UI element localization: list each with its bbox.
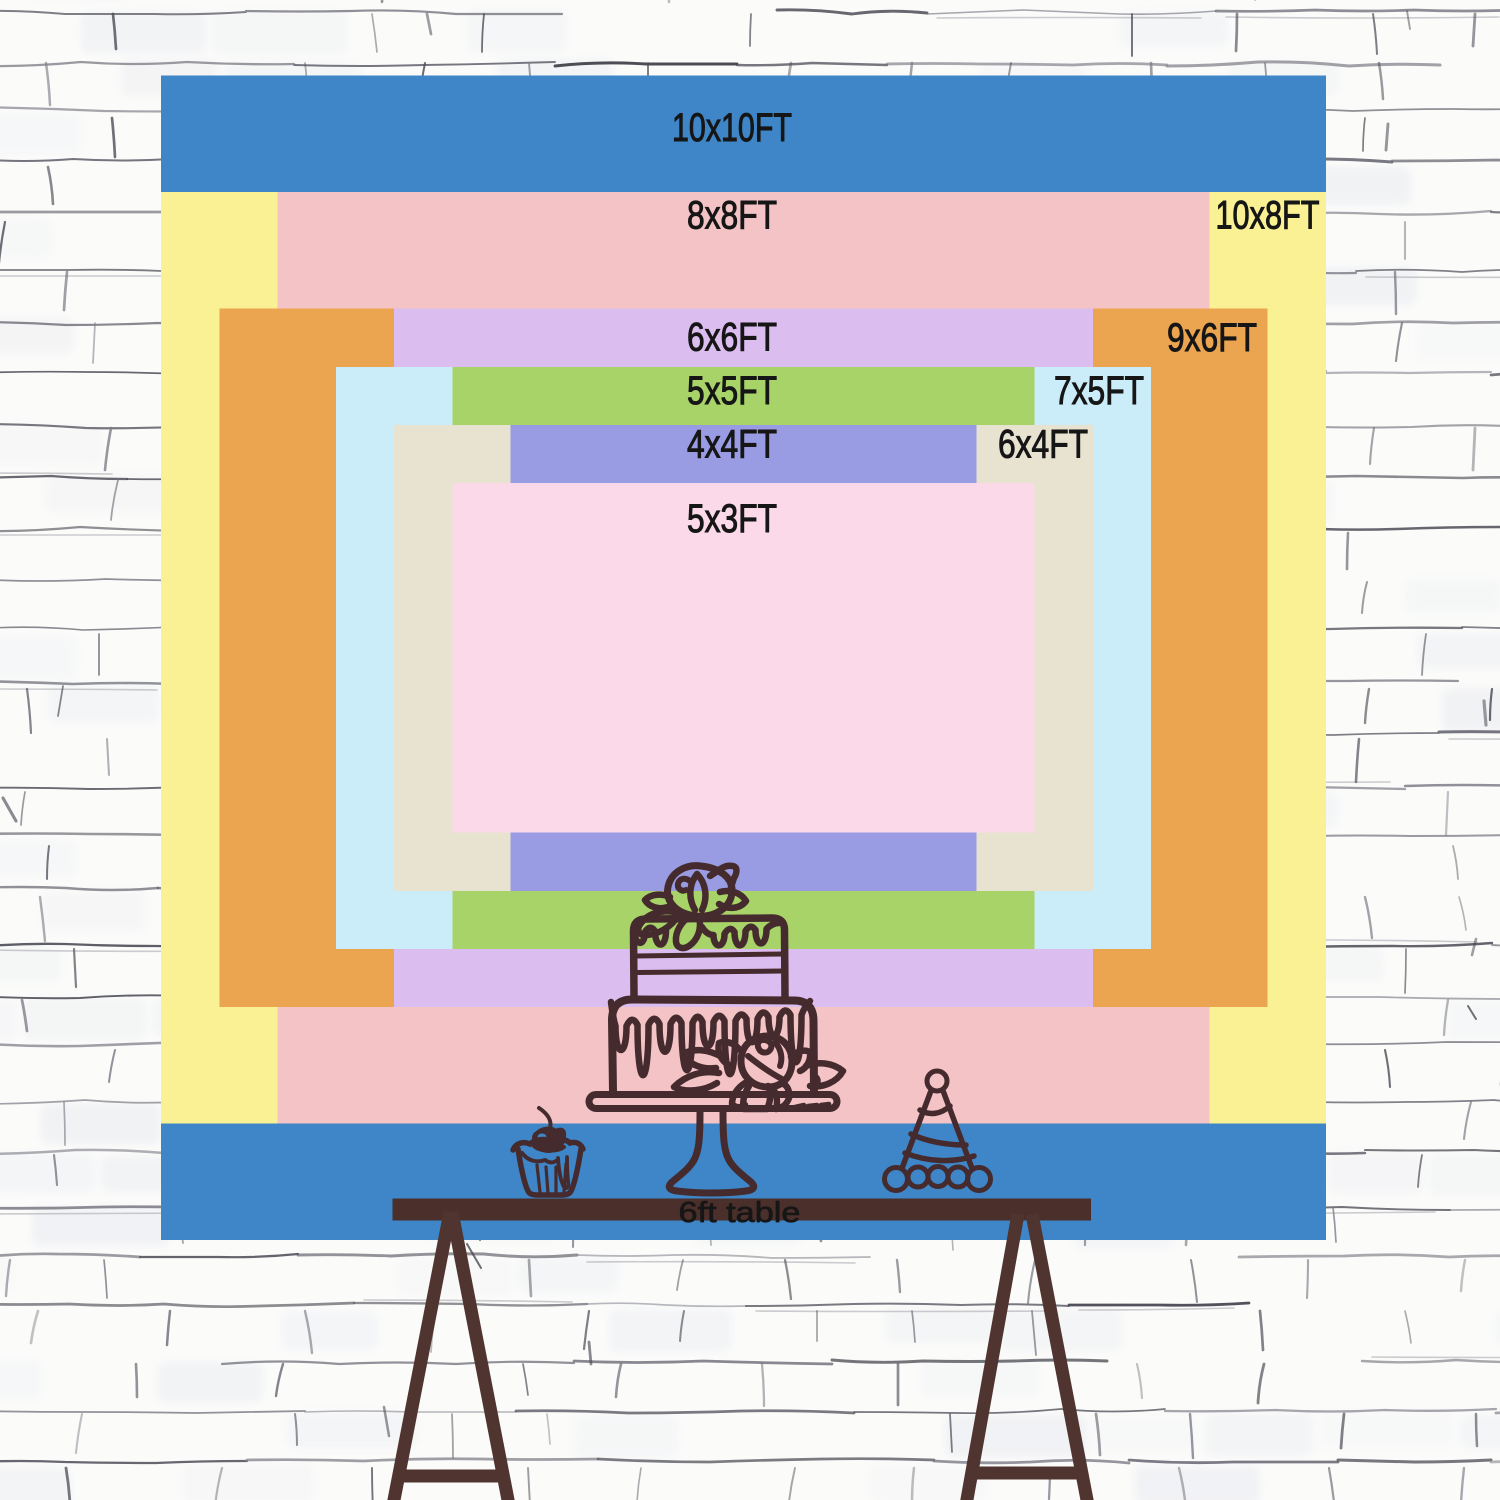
svg-text:4x4FT: 4x4FT (687, 423, 777, 467)
svg-text:8x8FT: 8x8FT (687, 194, 777, 238)
svg-text:7x5FT: 7x5FT (1054, 369, 1144, 413)
svg-text:6ft table: 6ft table (679, 1197, 801, 1229)
svg-text:10x10FT: 10x10FT (672, 106, 792, 150)
svg-text:9x6FT: 9x6FT (1167, 316, 1257, 360)
svg-text:6x4FT: 6x4FT (998, 423, 1088, 467)
svg-text:5x5FT: 5x5FT (687, 369, 777, 413)
svg-text:6x6FT: 6x6FT (687, 316, 777, 360)
svg-text:5x3FT: 5x3FT (687, 497, 777, 541)
svg-text:10x8FT: 10x8FT (1216, 194, 1320, 238)
